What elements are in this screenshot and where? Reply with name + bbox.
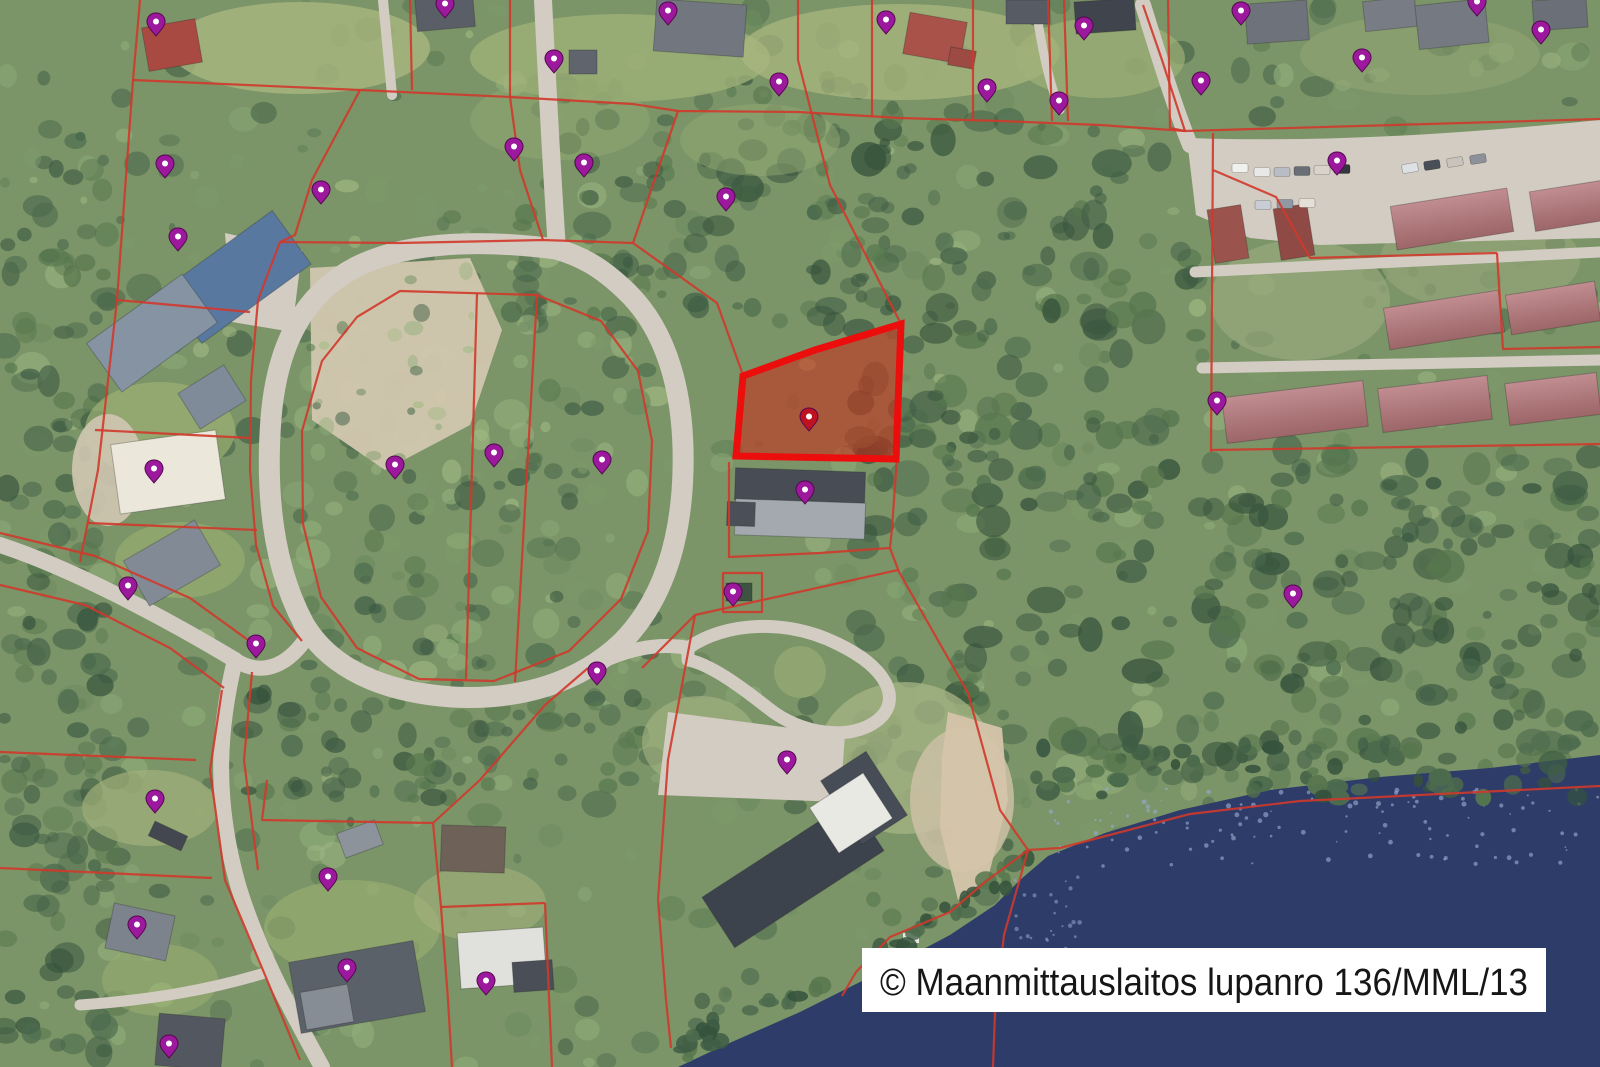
- aerial-map-view: © Maanmittauslaitos lupanro 136/MML/13: [0, 0, 1600, 1067]
- building: [569, 50, 597, 74]
- building: [1363, 0, 1418, 32]
- attribution-label: © Maanmittauslaitos lupanro 136/MML/13: [880, 962, 1528, 1004]
- cadastral-orthophoto-map: © Maanmittauslaitos lupanro 136/MML/13: [0, 0, 1600, 1067]
- parked-car: [1254, 168, 1270, 177]
- parked-car: [1294, 167, 1310, 176]
- building: [440, 825, 506, 873]
- building: [1006, 0, 1050, 24]
- building: [727, 502, 756, 527]
- parked-car: [1255, 201, 1271, 210]
- building: [1245, 0, 1310, 44]
- building: [300, 984, 354, 1030]
- building: [111, 430, 226, 514]
- parked-car: [1314, 166, 1330, 175]
- attribution: © Maanmittauslaitos lupanro 136/MML/13: [862, 948, 1546, 1012]
- parked-car: [1232, 164, 1248, 173]
- parked-car: [1299, 199, 1315, 208]
- parked-car: [1274, 168, 1290, 177]
